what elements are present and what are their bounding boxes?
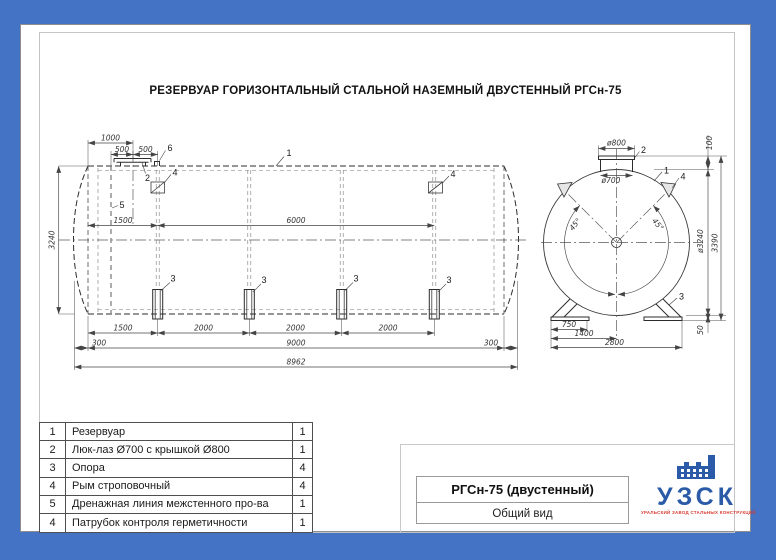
- callout-3-side-2: 3: [262, 275, 267, 285]
- side-view: 1000 500 500 1500 6000 1500 2000 2000 20…: [48, 134, 529, 371]
- title-block: РГСн-75 (двустенный) Общий вид: [416, 476, 629, 524]
- dim-300-right: 300: [484, 339, 499, 348]
- dim-d700: ø700: [601, 176, 621, 185]
- callout-1-side: 1: [287, 148, 292, 158]
- dim-2800: 2800: [605, 338, 624, 347]
- extension-lines-side: [59, 140, 518, 370]
- table-row: 4 Патрубок контроля герметичности 1: [40, 514, 312, 532]
- view-name: Общий вид: [417, 503, 628, 524]
- callout-2-end: 2: [641, 145, 646, 155]
- part-pos: 2: [40, 441, 66, 458]
- title-block-divider-h: [400, 444, 735, 445]
- part-name: Люк-лаз Ø700 с крышкой Ø800: [66, 441, 293, 458]
- dim-500-right: 500: [138, 145, 153, 154]
- part-qty: 1: [293, 514, 312, 532]
- callout-4-end: 4: [681, 172, 686, 182]
- end-view: 45° 45° ø800 ø700: [541, 135, 727, 349]
- callout-3-side-3: 3: [354, 274, 359, 284]
- part-pos: 3: [40, 459, 66, 476]
- callout-4-side-left: 4: [173, 168, 178, 178]
- dim-100: 100: [705, 136, 714, 151]
- dim-300-left: 300: [92, 339, 107, 348]
- dim-1000: 1000: [101, 134, 120, 143]
- part-qty: 4: [293, 459, 312, 476]
- dim-8962: 8962: [286, 358, 305, 367]
- dim-3240: 3240: [48, 230, 57, 249]
- part-name: Резервуар: [66, 423, 293, 440]
- dim-6000: 6000: [286, 216, 305, 225]
- part-name: Патрубок контроля герметичности: [66, 514, 293, 532]
- support-hidden-lines: [156, 170, 436, 289]
- part-pos: 5: [40, 496, 66, 513]
- drawing-sheet: РЕЗЕРВУАР ГОРИЗОНТАЛЬНЫЙ СТАЛЬНОЙ НАЗЕМН…: [20, 24, 751, 532]
- part-name: Дренажная линия межстенного про-ва: [66, 496, 293, 513]
- dim-3390: 3390: [711, 233, 720, 252]
- part-name: Опора: [66, 459, 293, 476]
- part-qty: 1: [293, 423, 312, 440]
- manhole-side: [114, 159, 151, 167]
- dim-2000-b: 2000: [286, 324, 305, 333]
- part-qty: 1: [293, 441, 312, 458]
- dim-50: 50: [696, 325, 705, 335]
- lug-triangle-right: [661, 183, 676, 198]
- dim-1400: 1400: [574, 329, 593, 338]
- table-row: 2 Люк-лаз Ø700 с крышкой Ø800 1: [40, 441, 312, 459]
- dim-dd3240: ø3240: [696, 229, 705, 254]
- angle-45-left: 45°: [567, 216, 583, 232]
- model-designation: РГСн-75 (двустенный): [417, 477, 628, 503]
- callout-6-side: 6: [168, 143, 173, 153]
- dim-9000: 9000: [286, 339, 305, 348]
- slide-background: РЕЗЕРВУАР ГОРИЗОНТАЛЬНЫЙ СТАЛЬНОЙ НАЗЕМН…: [0, 0, 776, 560]
- table-row: 1 Резервуар 1: [40, 423, 312, 441]
- part-qty: 1: [293, 496, 312, 513]
- factory-icon: [672, 453, 722, 480]
- table-row: 4 Рым строповочный 4: [40, 478, 312, 496]
- angle-45-right: 45°: [650, 216, 666, 232]
- callout-5-side: 5: [120, 200, 125, 210]
- logo-abbr: УЗСК: [641, 485, 753, 509]
- dim-500-left: 500: [115, 145, 130, 154]
- company-logo: УЗСК УРАЛЬСКИЙ ЗАВОД СТАЛЬНЫХ КОНСТРУКЦИ…: [641, 453, 753, 529]
- lifting-lug-left: [151, 182, 165, 193]
- callout-2-side: 2: [145, 173, 150, 183]
- table-row: 5 Дренажная линия межстенного про-ва 1: [40, 496, 312, 514]
- part-name: Рым строповочный: [66, 478, 293, 495]
- dim-2000-c: 2000: [378, 324, 397, 333]
- end-centerlines: [541, 149, 701, 336]
- logo-subtitle: УРАЛЬСКИЙ ЗАВОД СТАЛЬНЫХ КОНСТРУКЦИЙ: [641, 510, 753, 515]
- dim-750: 750: [562, 320, 577, 329]
- table-row: 3 Опора 4: [40, 459, 312, 477]
- callouts-side: 1 6 2 4 5 4 3 3 3 3: [112, 143, 456, 292]
- control-nozzle: [154, 162, 160, 167]
- dim-1500-mid: 1500: [113, 216, 132, 225]
- parts-table: 1 Резервуар 1 2 Люк-лаз Ø700 с крышкой Ø…: [39, 422, 313, 533]
- part-pos: 4: [40, 514, 66, 532]
- part-pos: 1: [40, 423, 66, 440]
- part-pos: 4: [40, 478, 66, 495]
- dim-1500-bottom: 1500: [113, 324, 132, 333]
- part-qty: 4: [293, 478, 312, 495]
- callout-3-end: 3: [679, 292, 684, 302]
- dim-2000-a: 2000: [194, 324, 213, 333]
- callout-4-side-right: 4: [451, 169, 456, 179]
- title-block-divider-v: [400, 444, 401, 533]
- supports-side: [153, 290, 440, 320]
- dim-d800: ø800: [606, 139, 626, 148]
- callout-3-side-4: 3: [447, 275, 452, 285]
- callout-3-side-1: 3: [171, 274, 176, 284]
- lug-triangle-left: [558, 183, 573, 198]
- callout-1-end: 1: [664, 166, 669, 176]
